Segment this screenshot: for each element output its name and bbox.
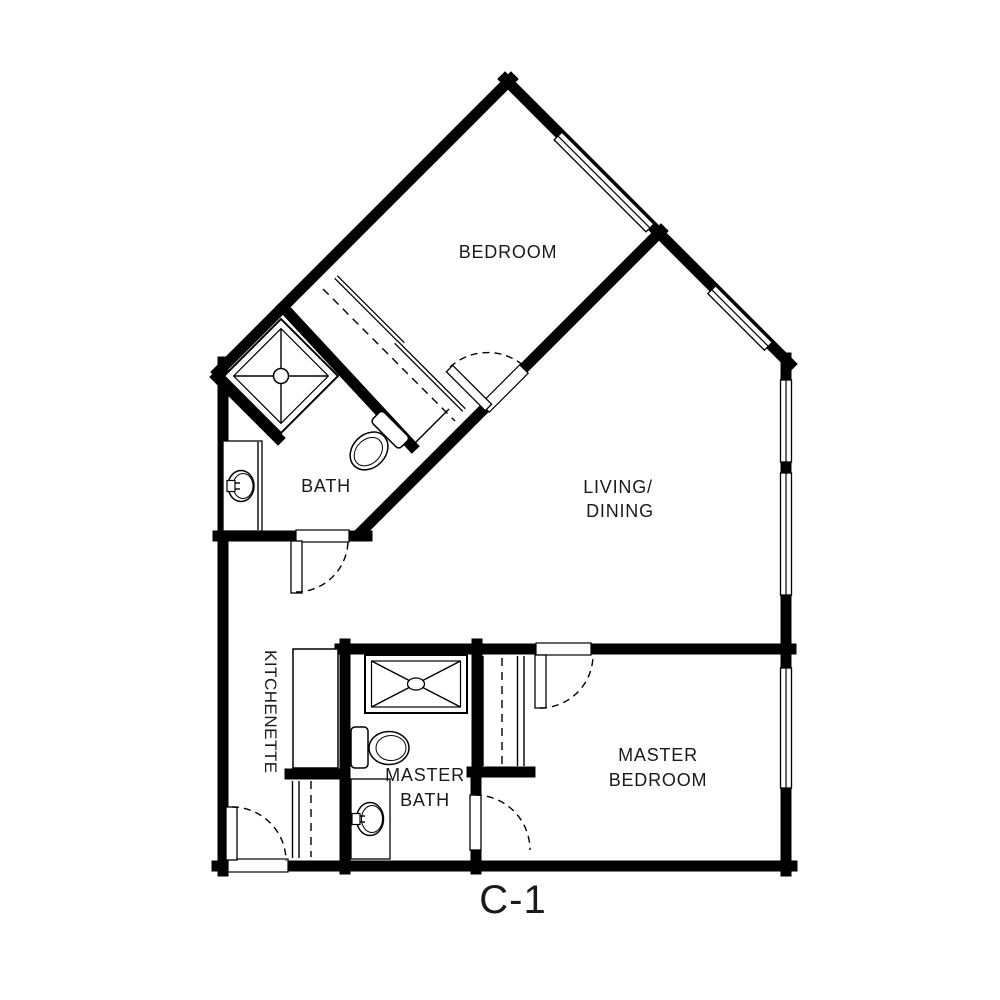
floor-plan-drawing: BEDROOM LIVING/ DINING BATH KITCHENETTE … bbox=[0, 0, 1000, 1000]
unit-label: C-1 bbox=[479, 878, 546, 922]
bedroom-label: BEDROOM bbox=[459, 242, 558, 262]
master-bath-label-line1: MASTER bbox=[385, 765, 465, 785]
faucet-icon bbox=[227, 481, 235, 492]
master-bedroom-label-line2: BEDROOM bbox=[609, 770, 708, 790]
kitchenette-label: KITCHENETTE bbox=[261, 650, 280, 774]
bath-sink-vanity bbox=[223, 441, 262, 531]
master-sink-vanity bbox=[351, 779, 390, 859]
window-icon bbox=[781, 380, 792, 462]
bath-label: BATH bbox=[301, 476, 351, 496]
window-icon bbox=[781, 668, 792, 788]
floor-plan-page: BEDROOM LIVING/ DINING BATH KITCHENETTE … bbox=[0, 0, 1000, 1000]
master-shower-icon bbox=[365, 655, 467, 713]
kitchenette-counter bbox=[293, 649, 338, 768]
faucet-icon bbox=[352, 814, 360, 825]
living-dining-label-line1: LIVING/ bbox=[583, 477, 653, 497]
master-bath-label-line2: BATH bbox=[400, 790, 450, 810]
window-icon bbox=[781, 473, 792, 595]
living-dining-label-line2: DINING bbox=[586, 501, 654, 521]
master-bedroom-label-line1: MASTER bbox=[618, 745, 698, 765]
